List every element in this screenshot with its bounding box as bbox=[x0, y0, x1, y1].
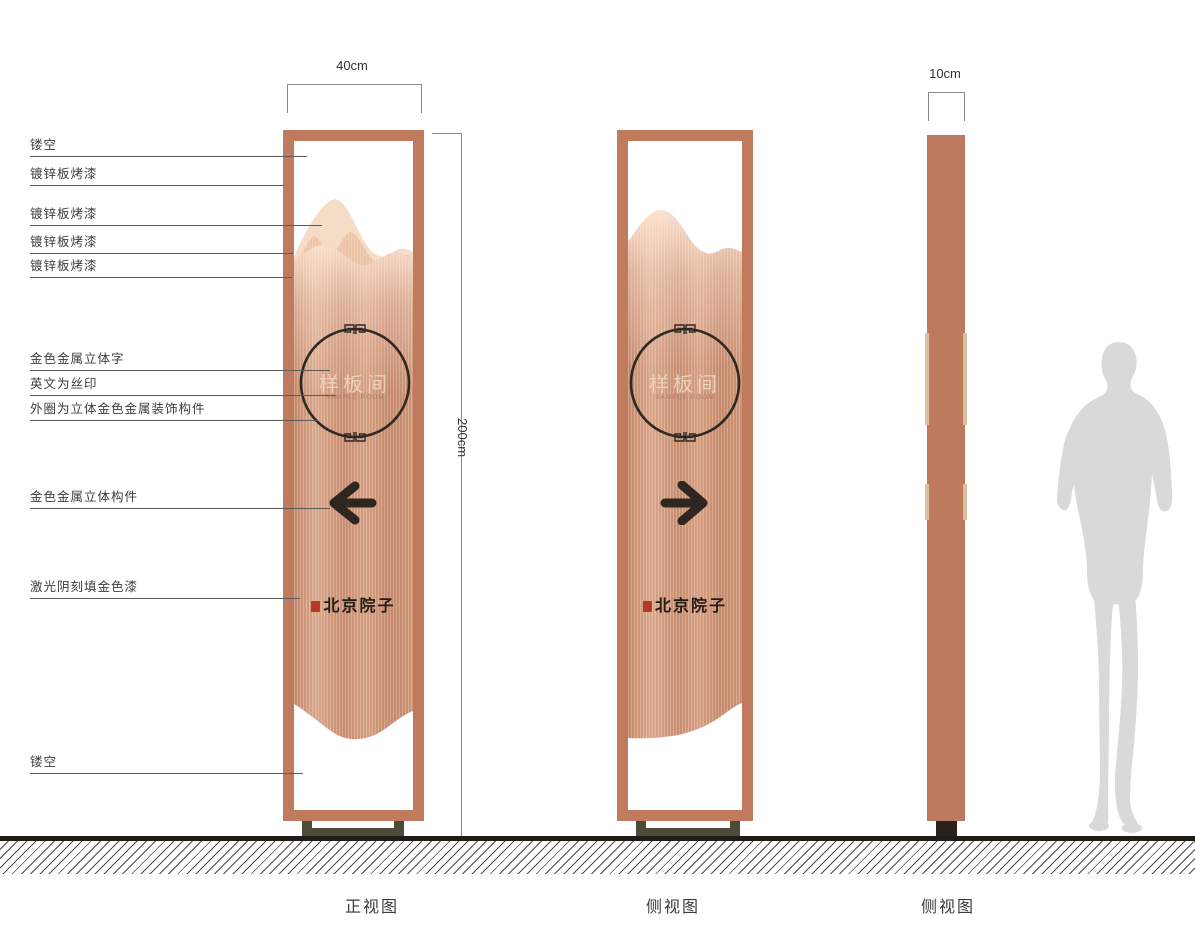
brand-name-text: 北京院子 bbox=[655, 596, 727, 615]
dimension-front-width: 40cm bbox=[312, 58, 392, 73]
view-label-front: 正视图 bbox=[332, 893, 412, 917]
human-scale-silhouette bbox=[1042, 334, 1182, 834]
front-sign-frame bbox=[283, 130, 424, 821]
profile-notch bbox=[963, 333, 967, 425]
red-seal-icon bbox=[311, 601, 320, 612]
brand-logo: 北京院子 bbox=[628, 595, 742, 617]
callout-galvanized-3: 镀锌板烤漆 bbox=[30, 231, 293, 254]
dimension-height-line bbox=[461, 133, 462, 836]
callout-galvanized-4: 镀锌板烤漆 bbox=[30, 255, 292, 278]
callout-label: 镀锌板烤漆 bbox=[30, 207, 98, 221]
brand-name-text: 北京院子 bbox=[323, 596, 395, 615]
callout-label: 外圈为立体金色金属装饰构件 bbox=[30, 402, 206, 416]
dimension-bracket-front bbox=[287, 84, 422, 113]
callout-label: 镀锌板烤漆 bbox=[30, 167, 98, 181]
profile-notch bbox=[925, 333, 929, 425]
profile-sign-body bbox=[927, 135, 965, 821]
callout-label: 英文为丝印 bbox=[30, 377, 98, 391]
profile-notch bbox=[925, 484, 929, 520]
callout-laser-engrave: 激光阴刻填金色漆 bbox=[30, 576, 300, 599]
dimension-tick-top bbox=[432, 133, 461, 134]
ground-hatch bbox=[0, 841, 1195, 874]
callout-hollow-top: 镂空 bbox=[30, 134, 307, 157]
callout-label: 镂空 bbox=[30, 755, 57, 769]
dimension-height: 200cm bbox=[455, 418, 470, 457]
room-name-text: 样板间 bbox=[625, 368, 745, 397]
callout-galvanized-1: 镀锌板烤漆 bbox=[30, 163, 284, 186]
dimension-side-width: 10cm bbox=[905, 66, 985, 81]
side-sign-panel bbox=[628, 141, 742, 810]
ground-line bbox=[0, 836, 1195, 841]
right-arrow-icon bbox=[656, 481, 726, 525]
signage-design-sheet: 镂空 镀锌板烤漆 镀锌板烤漆 镀锌板烤漆 镀锌板烤漆 金色金属立体字 英文为丝印… bbox=[0, 0, 1195, 927]
front-sign-panel bbox=[294, 141, 413, 810]
callout-galvanized-2: 镀锌板烤漆 bbox=[30, 203, 322, 226]
callout-label: 镂空 bbox=[30, 138, 57, 152]
red-seal-icon bbox=[643, 601, 652, 612]
callout-label: 金色金属立体构件 bbox=[30, 490, 138, 504]
profile-notch bbox=[963, 484, 967, 520]
callout-label: 激光阴刻填金色漆 bbox=[30, 580, 138, 594]
dimension-bracket-side bbox=[928, 92, 965, 121]
callout-gold-ring: 外圈为立体金色金属装饰构件 bbox=[30, 398, 317, 421]
callout-hollow-bottom: 镂空 bbox=[30, 751, 303, 774]
left-arrow-icon bbox=[323, 481, 393, 525]
view-label-side: 侧视图 bbox=[633, 893, 713, 917]
callout-label: 镀锌板烤漆 bbox=[30, 235, 98, 249]
brand-logo: 北京院子 bbox=[294, 595, 413, 617]
callout-gold-component: 金色金属立体构件 bbox=[30, 486, 330, 509]
callout-silkscreen-english: 英文为丝印 bbox=[30, 373, 336, 396]
callout-label: 金色金属立体字 bbox=[30, 352, 125, 366]
side-sign-frame bbox=[617, 130, 753, 821]
view-label-side2: 侧视图 bbox=[908, 893, 988, 917]
room-name-english: SAMPLE ROOM bbox=[625, 394, 745, 401]
callout-gold-letters: 金色金属立体字 bbox=[30, 348, 330, 371]
callout-label: 镀锌板烤漆 bbox=[30, 259, 98, 273]
